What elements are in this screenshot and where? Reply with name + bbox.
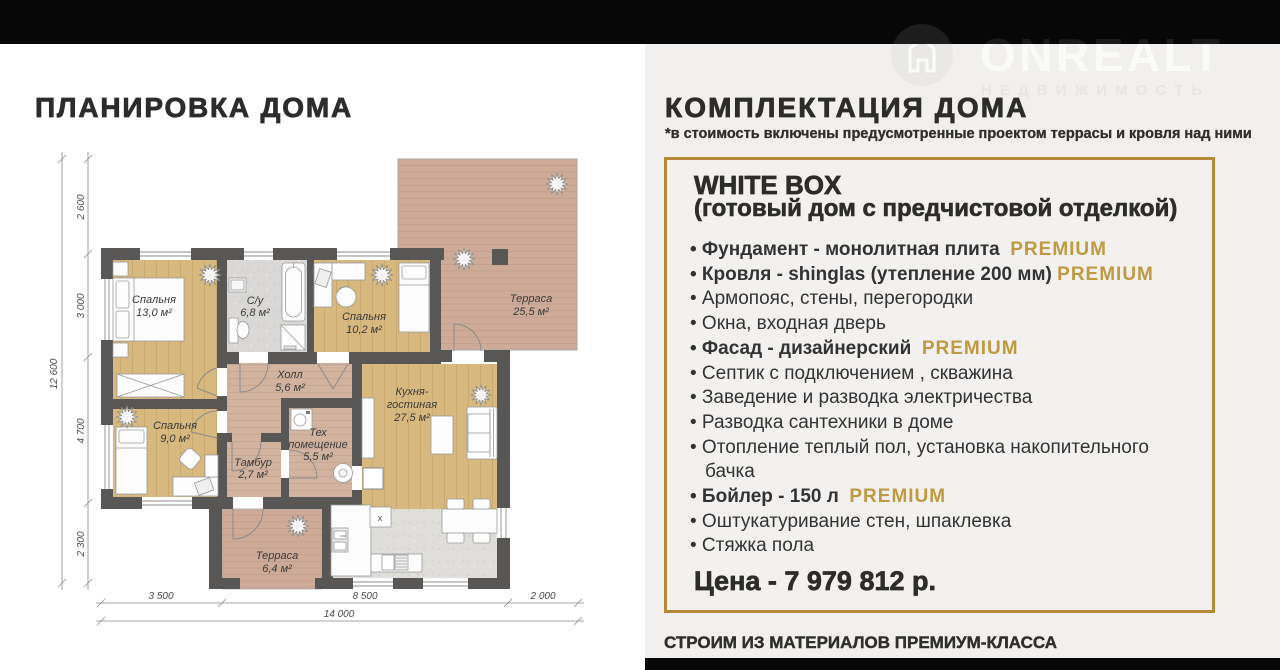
svg-text:4 700: 4 700	[76, 418, 87, 443]
svg-text:Спальня: Спальня	[342, 311, 386, 323]
svg-text:5,6 м²: 5,6 м²	[275, 382, 305, 394]
svg-text:25,5 м²: 25,5 м²	[512, 306, 549, 318]
svg-text:8 500: 8 500	[352, 591, 377, 602]
svg-text:14 000: 14 000	[324, 609, 355, 620]
svg-text:6,8 м²: 6,8 м²	[240, 307, 270, 319]
svg-text:10,2 м²: 10,2 м²	[346, 324, 382, 336]
svg-text:С/у: С/у	[247, 295, 265, 307]
svg-text:Терраса: Терраса	[256, 550, 298, 562]
svg-text:27,5 м²: 27,5 м²	[393, 412, 430, 424]
svg-text:Кухня-: Кухня-	[396, 386, 429, 398]
svg-text:Тамбур: Тамбур	[234, 457, 272, 469]
svg-text:гостиная: гостиная	[387, 399, 437, 411]
svg-text:2 300: 2 300	[76, 531, 87, 557]
svg-text:Спальня: Спальня	[132, 294, 176, 306]
svg-text:2,7 м²: 2,7 м²	[237, 469, 268, 481]
svg-text:2 000: 2 000	[529, 591, 555, 602]
svg-text:5,5 м²: 5,5 м²	[303, 451, 333, 463]
svg-text:13,0 м²: 13,0 м²	[136, 307, 172, 319]
svg-text:Терраса: Терраса	[510, 293, 552, 305]
svg-text:6,4 м²: 6,4 м²	[262, 563, 292, 575]
svg-text:Тех: Тех	[309, 427, 327, 439]
svg-text:помещение: помещение	[288, 439, 348, 451]
svg-text:9,0 м²: 9,0 м²	[160, 433, 190, 445]
svg-text:Холл: Холл	[276, 369, 302, 381]
svg-text:3 500: 3 500	[148, 591, 173, 602]
svg-text:3 000: 3 000	[76, 293, 87, 318]
svg-text:x: x	[378, 513, 383, 523]
svg-text:2 600: 2 600	[76, 194, 87, 220]
svg-text:Спальня: Спальня	[153, 420, 197, 432]
svg-text:12 600: 12 600	[49, 358, 60, 389]
